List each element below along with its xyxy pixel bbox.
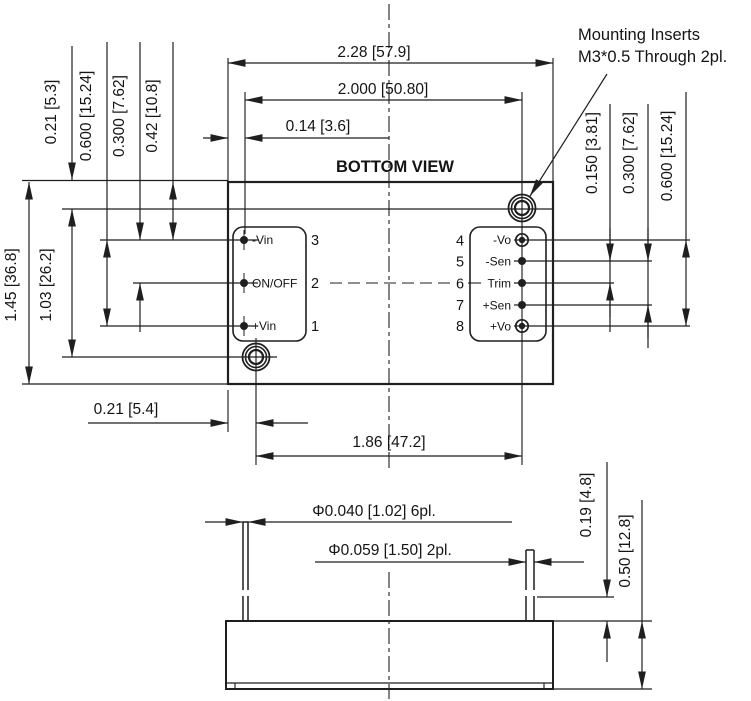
side-view: Φ0.040 [1.02] 6pl. Φ0.059 [1.50] 2pl. 0.… [205,462,652,699]
pin-2-number: 2 [311,276,319,292]
label-input-pin-span: 0.600 [15.24] [78,71,95,162]
label-output-pin-span: 0.600 [15.24] [659,111,676,202]
top-view: -Vin ON/OFF +Vin 3 2 1 -Vo -Sen Trim +Se… [3,4,727,470]
pin-6-number: 6 [456,277,464,293]
pin-4-label: -Vo [493,233,511,247]
mounting-note-line1: Mounting Inserts [578,26,700,44]
pin-5-label: -Sen [486,255,511,269]
pin-1-number: 1 [311,319,319,335]
dimension-labels: 2.28 [57.9] 2.000 [50.80] 0.14 [3.6] BOT… [3,44,676,451]
mounting-note-line2: M3*0.5 Through 2pl. [578,48,727,66]
drawing-canvas: -Vin ON/OFF +Vin 3 2 1 -Vo -Sen Trim +Se… [0,0,751,701]
label-input-pin-pitch: 0.300 [7.62] [111,75,128,157]
view-title: BOTTOM VIEW [336,158,454,176]
side-dimension-labels: Φ0.040 [1.02] 6pl. Φ0.059 [1.50] 2pl. 0.… [312,473,634,588]
pin-4-number: 4 [456,234,464,250]
pin-7-label: +Sen [483,299,511,313]
pin-1-label: +Vin [252,319,276,333]
label-case-height: 0.50 [12.8] [617,514,634,587]
pin-7-dot [518,301,526,309]
label-edge-to-pin-column: 0.14 [3.6] [286,118,351,135]
pin-8-dot [519,323,525,329]
label-top-edge-to-insert: 0.21 [5.3] [43,80,60,145]
pin-7-number: 7 [456,298,464,314]
pin-2-label: ON/OFF [252,277,297,291]
pin-6-dot [518,279,526,287]
side-dimension-lines [205,462,642,689]
pin-8-label: +Vo [490,320,511,334]
pin-4-dot [519,237,525,243]
pin-6-label: Trim [487,277,511,291]
side-left-pin [243,522,248,621]
side-extension-lines [537,597,652,689]
label-signal-pin-diameter: Φ0.040 [1.02] 6pl. [312,503,436,520]
label-power-pin-diameter: Φ0.059 [1.50] 2pl. [328,542,452,559]
label-overall-width: 2.28 [57.9] [337,44,410,61]
label-edge-to-insert: 0.21 [5.4] [94,401,159,418]
label-pin-protrusion: 0.19 [4.8] [578,473,595,538]
label-overall-height: 1.45 [36.8] [3,248,20,321]
side-right-pin [526,550,534,621]
label-insert-horizontal-span: 1.86 [47.2] [352,434,425,451]
label-output-pin-pitch: 0.150 [3.81] [584,112,601,194]
pin-5-dot [518,257,526,265]
pin-8-number: 8 [456,319,464,335]
pin-3-number: 3 [311,233,319,249]
input-pin-block: -Vin ON/OFF +Vin 3 2 1 [233,227,319,341]
mechanical-drawing: -Vin ON/OFF +Vin 3 2 1 -Vo -Sen Trim +Se… [0,0,751,701]
output-pin-block: -Vo -Sen Trim +Sen +Vo 4 5 6 7 8 [456,227,546,341]
label-output-sen-span: 0.300 [7.62] [621,112,638,194]
pin-5-number: 5 [456,255,464,271]
label-top-edge-to-pin3: 0.42 [10.8] [144,79,161,152]
label-insert-vertical-span: 1.03 [26.2] [38,248,55,321]
pin-3-label: -Vin [252,233,273,247]
label-pin-column-span: 2.000 [50.80] [338,81,429,98]
